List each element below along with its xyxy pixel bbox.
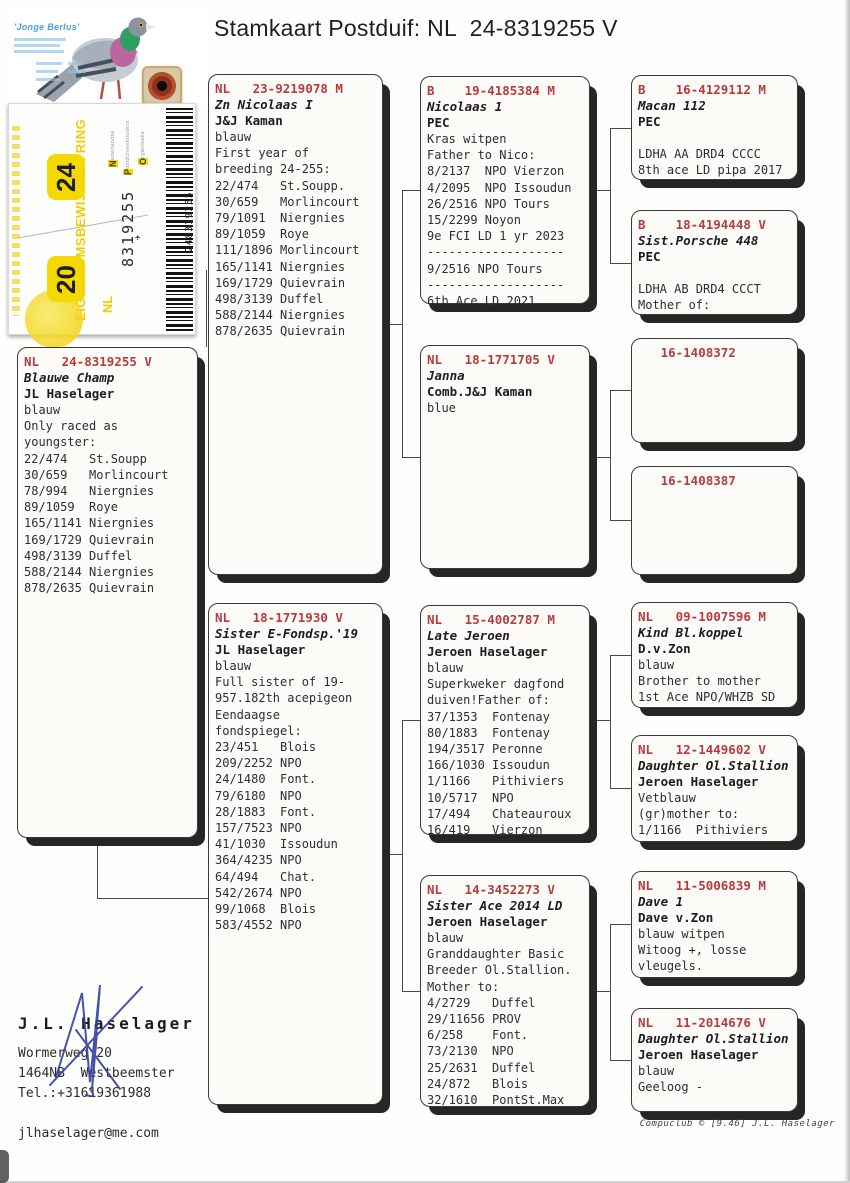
ring-number-print: 8319255 — [119, 178, 137, 278]
org-word: Nederlandse — [108, 112, 118, 184]
owner-name: JL Haselager — [215, 642, 376, 658]
ring-number: 16-1408387 — [638, 472, 791, 489]
pedigree-box-great-grandparent-6: NL 12-1449602 V Daughter Ol.Stallion Jer… — [631, 735, 798, 842]
pigeon-details: Kras witpen Father to Nico: 8/2137 NPO V… — [427, 131, 583, 309]
connector-line — [610, 1060, 631, 1061]
connector-line — [206, 270, 207, 347]
owner-name: PEC — [638, 114, 791, 130]
pigeon-details: blauw Brother to mother 1st Ace NPO/WHZB… — [638, 657, 791, 706]
photo-fineprint-line — [68, 70, 86, 73]
pigeon-details: blauw Granddaughter Basic Breeder Ol.Sta… — [427, 930, 583, 1108]
connector-line — [383, 854, 402, 855]
owner-name: Dave v.Zon — [638, 910, 791, 926]
pigeon-details: blauw Only raced as youngster: 22/474 St… — [24, 402, 191, 596]
pigeon-name: Daughter Ol.Stallion — [638, 758, 791, 774]
connector-line — [402, 720, 403, 991]
connector-line — [590, 457, 610, 458]
connector-line — [97, 838, 98, 898]
owner-name: JL Haselager — [24, 386, 191, 402]
pedigree-box-great-grandparent-5: NL 09-1007596 M Kind Bl.koppel D.v.Zon b… — [631, 602, 798, 708]
connector-line — [610, 520, 631, 521]
scan-edge — [844, 0, 850, 1183]
pedigree-box-great-grandparent-2: B 18-4194448 V Sist.Porsche 448 PEC LDHA… — [631, 210, 798, 315]
connector-line — [610, 655, 631, 656]
ring-number: NL 12-1449602 V — [638, 741, 791, 758]
pigeon-details: LDHA AA DRD4 CCCC 8th ace LD pipa 2017 — [638, 130, 791, 179]
ring-number: NL 23-9219078 M — [215, 80, 376, 97]
ring-year-badge: 20 — [47, 256, 85, 302]
pedigree-box-great-grandparent-4: 16-1408387 — [631, 466, 798, 575]
page-title: Stamkaart Postduif: NL 24-8319255 V — [214, 14, 618, 42]
connector-line — [610, 924, 631, 925]
ring-number: NL 11-5006839 M — [638, 877, 791, 894]
ring-year-bottom: 20 — [50, 265, 81, 294]
pigeon-name: Daughter Ol.Stallion — [638, 1031, 791, 1047]
ring-number: NL 09-1007596 M — [638, 608, 791, 625]
signature — [40, 975, 165, 1105]
org-word: Organisatie — [138, 112, 148, 184]
ring-ownership-card: EIGENDOMSBEWIJS V/A RING 24 20 Nederland… — [8, 103, 196, 335]
ring-number: B 18-4194448 V — [638, 216, 791, 233]
pigeon-details: blauw First year of breeding 24-255: 22/… — [215, 129, 376, 340]
pedigree-box-grandfather-maternal: NL 15-4002787 M Late Jeroen Jeroen Hasel… — [420, 605, 590, 835]
pigeon-details: blue — [427, 400, 583, 416]
pedigree-box-grandmother-maternal: NL 14-3452273 V Sister Ace 2014 LD Jeroe… — [420, 875, 590, 1107]
pigeon-name: Late Jeroen — [427, 628, 583, 644]
connector-line — [610, 788, 631, 789]
pigeon-details: blauw Superkweker dagfond duiven!Father … — [427, 660, 583, 838]
ring-number: B 16-4129112 M — [638, 81, 791, 98]
connector-line — [590, 991, 610, 992]
connector-line — [610, 128, 631, 129]
pedigree-box-great-grandparent-3: 16-1408372 — [631, 338, 798, 443]
ring-number: NL 18-1771930 V — [215, 609, 376, 626]
connector-line — [610, 390, 631, 391]
owner-name: J&J Kaman — [215, 113, 376, 129]
pigeon-name: Dave 1 — [638, 894, 791, 910]
pigeon-name: Sister E-Fondsp.'19 — [215, 626, 376, 642]
pigeon-details: blauw Geeloog - — [638, 1063, 791, 1095]
pigeon-name: Janna — [427, 368, 583, 384]
photo-fineprint-line — [36, 70, 58, 73]
owner-name: Jeroen Haselager — [427, 914, 583, 930]
ring-number: 16-1408372 — [638, 344, 791, 361]
pigeon-details: LDHA AB DRD4 CCCT Mother of: — [638, 265, 791, 314]
pigeon-name: Kind Bl.koppel — [638, 625, 791, 641]
connector-line — [610, 128, 611, 263]
ring-number: NL 14-3452273 V — [427, 881, 583, 898]
pigeon-name: Sist.Porsche 448 — [638, 233, 791, 249]
connector-line — [402, 457, 420, 458]
photo-fineprint-line — [14, 50, 64, 53]
ring-number: NL 15-4002787 M — [427, 611, 583, 628]
photo-fineprint-line — [14, 38, 66, 41]
pigeon-name: Blauwe Champ — [24, 370, 191, 386]
connector-line — [402, 720, 420, 721]
pedigree-box-great-grandparent-8: NL 11-2014676 V Daughter Ol.Stallion Jer… — [631, 1008, 798, 1112]
photo-fineprint-line — [68, 62, 84, 65]
photo-fineprint-line — [14, 44, 60, 47]
stamkaart-page: Stamkaart Postduif: NL 24-8319255 V 'Jon… — [0, 0, 850, 1183]
connector-line — [610, 263, 631, 264]
pigeon-eye-photo — [142, 66, 182, 106]
pigeon-name: Zn Nicolaas I — [215, 97, 376, 113]
connector-line — [97, 898, 208, 899]
pigeon-name: Sister Ace 2014 LD — [427, 898, 583, 914]
photo-fineprint-line — [36, 62, 62, 65]
scan-mark — [0, 1150, 9, 1183]
owner-name: Comb.J&J Kaman — [427, 384, 583, 400]
connector-line — [383, 324, 402, 325]
pigeon-name: Macan 112 — [638, 98, 791, 114]
connector-line — [610, 655, 611, 788]
pedigree-box-mother: NL 18-1771930 V Sister E-Fondsp.'19 JL H… — [208, 603, 383, 1105]
owner-name: Jeroen Haselager — [638, 774, 791, 790]
pigeon-photo: 'Jonge Berlus' — [8, 6, 204, 103]
pedigree-box-grandfather-paternal: B 19-4185384 M Nicolaas 1 PEC Kras witpe… — [420, 76, 590, 304]
ring-number: NL 24-8319255 V — [24, 353, 191, 370]
connector-line — [610, 390, 611, 520]
connector-line — [590, 190, 610, 191]
ring-number: B 19-4185384 M — [427, 82, 583, 99]
software-credit: Compuclub © [9.46] J.L. Haselager — [620, 1119, 835, 1129]
owner-name: PEC — [638, 249, 791, 265]
pigeon-details: Vetblauw (gr)mother to: 1/1166 Pithivier… — [638, 790, 791, 839]
ring-number: NL 11-2014676 V — [638, 1014, 791, 1031]
country-code: NL — [100, 296, 115, 313]
owner-name: PEC — [427, 115, 583, 131]
pedigree-box-great-grandparent-1: B 16-4129112 M Macan 112 PEC LDHA AA DRD… — [631, 75, 798, 180]
owner-name: Jeroen Haselager — [638, 1047, 791, 1063]
card-edge-print — [12, 126, 20, 316]
pedigree-box-grandmother-paternal: NL 18-1771705 V Janna Comb.J&J Kaman blu… — [420, 345, 590, 569]
photo-fineprint-line — [36, 78, 60, 81]
pedigree-box-great-grandparent-7: NL 11-5006839 M Dave 1 Dave v.Zon blauw … — [631, 871, 798, 978]
pedigree-box-main: NL 24-8319255 V Blauwe Champ JL Haselage… — [17, 347, 198, 838]
owner-name: D.v.Zon — [638, 641, 791, 657]
plane-icon: ✈ — [133, 234, 144, 240]
pigeon-details: blauw Full sister of 19- 957.182th acepi… — [215, 658, 376, 933]
connector-line — [402, 190, 420, 191]
connector-line — [590, 720, 610, 721]
connector-line — [610, 924, 611, 1060]
ring-number: NL 18-1771705 V — [427, 351, 583, 368]
pigeon-name: Nicolaas 1 — [427, 99, 583, 115]
ring-year-badge: 24 — [47, 154, 85, 200]
owner-name: Jeroen Haselager — [427, 644, 583, 660]
connector-line — [402, 991, 420, 992]
pedigree-box-father: NL 23-9219078 M Zn Nicolaas I J&J Kaman … — [208, 74, 383, 575]
pigeon-details: blauw witpen Witoog +, losse vleugels. — [638, 926, 791, 975]
photo-caption: 'Jonge Berlus' — [14, 22, 80, 32]
ring-year-top: 24 — [50, 163, 81, 192]
barcode-number: 248319255 — [184, 124, 195, 319]
connector-line — [402, 190, 403, 457]
org-word: Postduivenhouders — [123, 112, 133, 184]
